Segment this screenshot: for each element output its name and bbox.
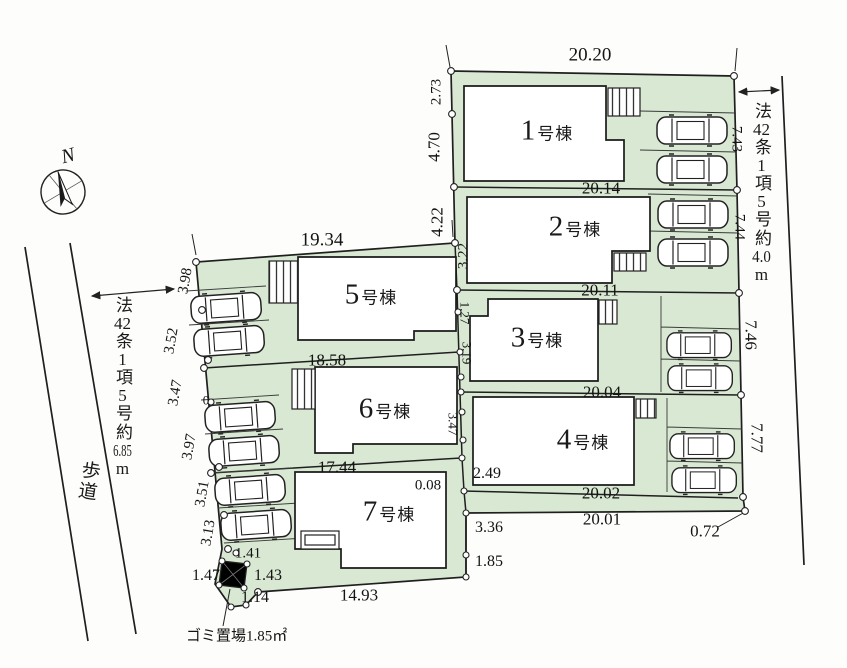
dim-17-44: 17.44 — [318, 459, 356, 476]
reg-left-p4: 項 — [113, 368, 132, 387]
dim-3-19: 3.19 — [461, 342, 474, 365]
building-1-number: 1 — [521, 115, 536, 148]
building-2-suffix: 号棟 — [563, 216, 601, 241]
dim-1-14: 1.14 — [241, 590, 269, 606]
garbage-area-label: ゴミ置場1.85㎡ — [186, 630, 287, 645]
dim-3-36: 3.36 — [475, 520, 503, 536]
dim-7-43: 7.43 — [729, 126, 744, 152]
compass-icon — [36, 165, 89, 218]
dim-3-22: 3.22 — [457, 243, 472, 269]
building-5-label: 5号棟 — [345, 279, 398, 312]
car-icon — [658, 237, 728, 268]
dim-4-70: 4.70 — [426, 132, 443, 162]
dim-20-14: 20.14 — [582, 180, 620, 197]
building-5-suffix: 号棟 — [359, 284, 397, 309]
building-5-number: 5 — [345, 279, 360, 312]
car-icon — [670, 432, 734, 461]
dim-20-01: 20.01 — [583, 511, 621, 528]
car-icon — [667, 331, 731, 360]
dim-20-11: 20.11 — [581, 282, 619, 299]
dim-1-41: 1.41 — [235, 547, 261, 562]
road-right-edge — [782, 76, 804, 565]
regulation-right-text: 法42条1項5号約4.0m — [753, 102, 770, 314]
car-icon — [668, 364, 732, 393]
reg-right-p8: 4.0 — [752, 248, 771, 265]
building-4-label: 4号棟 — [557, 424, 610, 457]
dim-20-04: 20.04 — [583, 384, 621, 401]
reg-left-p9: m — [113, 459, 132, 480]
building-4-suffix: 号棟 — [571, 429, 609, 454]
site-plan: 20.20 20.14 20.11 20.04 20.02 20.01 19.3… — [0, 0, 847, 668]
car-icon — [672, 466, 736, 495]
building-2-number: 2 — [549, 211, 564, 244]
building-7-suffix: 号棟 — [377, 501, 415, 526]
dim-7-77: 7.77 — [749, 423, 766, 453]
car-icon — [657, 154, 727, 185]
dim-2-49: 2.49 — [473, 466, 501, 482]
dim-20-20: 20.20 — [569, 46, 612, 65]
building-6-number: 6 — [359, 393, 374, 426]
building-7-number: 7 — [363, 496, 378, 529]
reg-right-p3: 1 — [752, 157, 771, 174]
building-3-number: 3 — [511, 322, 526, 355]
reg-right-p6: 号 — [752, 210, 771, 229]
building-7-label: 7号棟 — [363, 496, 416, 529]
reg-left-p3: 1 — [113, 351, 132, 368]
reg-left-p7: 約 — [113, 423, 132, 442]
reg-left-p0: 法 — [113, 296, 132, 315]
dim-4-22: 4.22 — [429, 207, 446, 237]
reg-left-p6: 号 — [113, 404, 132, 423]
regulation-left-text: 法42条1項5号約6.85m — [114, 296, 131, 501]
reg-left-p1: 42 — [113, 315, 132, 332]
car-icon — [657, 115, 727, 146]
reg-right-p5: 5 — [752, 193, 771, 210]
reg-right-p9: m — [752, 265, 771, 286]
building-1-label: 1号棟 — [521, 115, 574, 148]
reg-right-p4: 項 — [752, 174, 771, 193]
building-1-suffix: 号棟 — [535, 120, 573, 145]
building-3-suffix: 号棟 — [525, 327, 563, 352]
dim-7-46: 7.46 — [743, 320, 760, 350]
reg-left-p5: 5 — [113, 387, 132, 404]
building-6-suffix: 号棟 — [373, 398, 411, 423]
reg-left-p2: 条 — [113, 332, 132, 351]
dim-1-43: 1.43 — [254, 568, 282, 584]
reg-left-p8: 6.85 — [113, 442, 132, 459]
dim-2-73: 2.73 — [430, 79, 445, 105]
building-4-number: 4 — [557, 424, 572, 457]
dim-19-34: 19.34 — [301, 231, 344, 250]
building-2-label: 2号棟 — [549, 211, 602, 244]
dim-18-58: 18.58 — [308, 352, 346, 369]
reg-right-p1: 42 — [752, 121, 771, 138]
dim-1-47: 1.47 — [192, 568, 220, 584]
dim-1-27: 1.27 — [459, 302, 472, 325]
dim-20-02: 20.02 — [582, 485, 620, 502]
reg-right-p0: 法 — [752, 102, 771, 121]
dim-0-08: 0.08 — [415, 479, 441, 494]
reg-right-p7: 約 — [752, 229, 771, 248]
car-icon — [658, 199, 728, 230]
building-6-label: 6号棟 — [359, 393, 412, 426]
dim-0-72: 0.72 — [690, 523, 720, 540]
building-3-label: 3号棟 — [511, 322, 564, 355]
dim-1-85: 1.85 — [475, 554, 503, 570]
dim-0: 0 — [203, 394, 210, 407]
dim-3-47-mid: 3.47 — [447, 413, 460, 436]
dim-14-93: 14.93 — [340, 587, 378, 604]
dim-7-44: 7.44 — [732, 214, 747, 240]
leader-0-72 — [718, 512, 745, 527]
reg-right-p2: 条 — [752, 138, 771, 157]
